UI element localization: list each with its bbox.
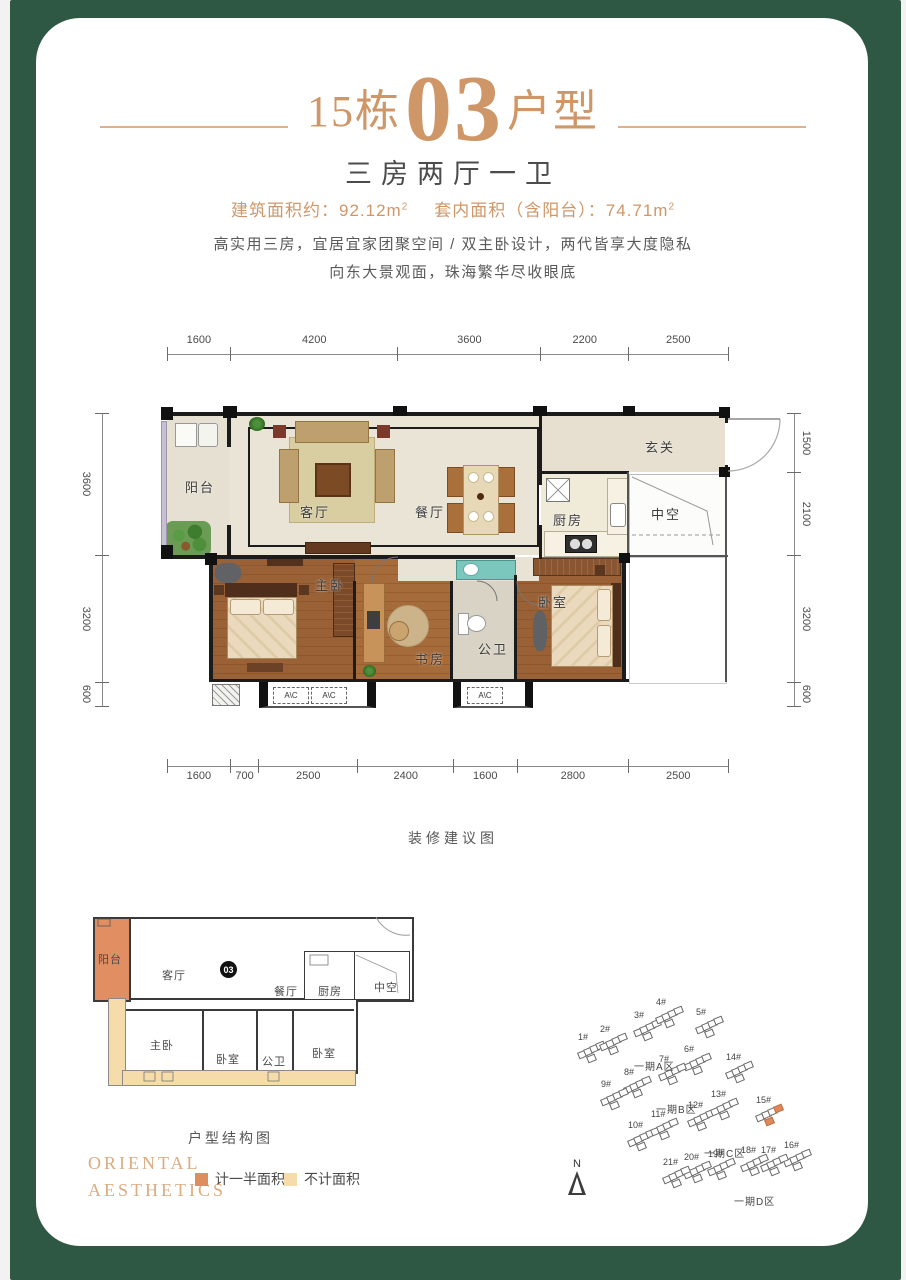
site-zone-label-1: 一期B区 (656, 1101, 697, 1116)
site-building-13: 13# (711, 1099, 737, 1115)
structure-plan: 03 阳台客厅餐厅厨房中空主卧卧室公卫卧室 (90, 903, 425, 1103)
study-plant (363, 665, 376, 677)
site-building-id: 20# (684, 1152, 699, 1162)
dim-label: 3200 (800, 607, 812, 631)
room-label-7: 书房 (415, 649, 445, 668)
foyer-room (539, 415, 725, 472)
dimension-chain-bottom: 160070025002400160028002500 (167, 752, 728, 788)
bedroom2-rug (533, 611, 547, 651)
room-label-0: 阳台 (185, 477, 215, 496)
site-building-15: 15# (756, 1105, 782, 1121)
sofa-main (295, 421, 369, 443)
structure-plan-caption: 户型结构图 (188, 1128, 273, 1148)
site-building-5: 5# (696, 1017, 722, 1033)
inner-area-sup: 2 (668, 201, 675, 212)
toilet-bowl (467, 615, 486, 632)
plate-2 (483, 472, 494, 483)
build-area-value: 92.12m (339, 201, 402, 220)
master-bed-head (225, 583, 297, 597)
site-building-id: 15# (756, 1095, 771, 1105)
legend-no-area: 不计面积 (284, 1169, 360, 1189)
site-building-6: 6# (684, 1054, 710, 1070)
site-zone-label-2: 一期C区 (704, 1145, 745, 1160)
study-chair (389, 621, 409, 641)
dim-label: 2500 (666, 334, 690, 346)
dim-label: 600 (80, 685, 92, 703)
dim-label: 3200 (80, 607, 92, 631)
master-bench (247, 663, 283, 672)
sp-room-label-2: 餐厅 (274, 983, 298, 999)
dim-label: 1600 (187, 334, 211, 346)
dim-label: 2200 (573, 334, 597, 346)
dim-label: 2100 (800, 502, 812, 526)
site-building-id: 1# (578, 1032, 588, 1042)
description-line-1: 高实用三房，宜居宜家团聚空间 / 双主卧设计，两代皆享大度隐私 (0, 233, 906, 254)
legend-swatch-no (284, 1173, 297, 1186)
sofa-right (375, 449, 395, 503)
site-zone-label-0: 一期A区 (634, 1058, 675, 1073)
sp-room-label-5: 主卧 (150, 1037, 174, 1053)
dim-label: 700 (235, 770, 253, 782)
side-table-left (273, 425, 286, 438)
washer (175, 423, 197, 447)
dim-label: 4200 (302, 334, 326, 346)
room-label-1: 客厅 (300, 502, 330, 521)
sp-room-label-1: 客厅 (162, 967, 186, 983)
fridge (546, 478, 570, 502)
ac-unit-label: A\C (478, 691, 491, 700)
site-building-id: 3# (634, 1010, 644, 1020)
room-label-3: 玄关 (645, 437, 675, 456)
study-laptop (367, 611, 380, 629)
sp-unit-badge: 03 (220, 961, 237, 978)
site-building-id: 21# (663, 1157, 678, 1167)
sp-room-label-7: 公卫 (262, 1053, 286, 1069)
site-building-id: 13# (711, 1089, 726, 1099)
site-building-id: 4# (656, 997, 666, 1007)
build-area-label: 建筑面积约： (231, 201, 339, 220)
stove (565, 535, 597, 553)
planter-hatch (212, 684, 240, 706)
legend-label-no: 不计面积 (304, 1169, 360, 1189)
dining-chairs-right2 (497, 503, 515, 533)
ac-unit-label: A\C (284, 691, 297, 700)
site-building-id: 14# (726, 1052, 741, 1062)
site-zone-label-3: 一期D区 (734, 1193, 775, 1208)
dim-label: 1600 (187, 770, 211, 782)
dining-chairs-right (497, 467, 515, 497)
bath-basin (463, 563, 479, 576)
dim-label: 2800 (561, 770, 585, 782)
site-building-14: 14# (726, 1062, 752, 1078)
area-info: 建筑面积约：92.12m2套内面积（含阳台）：74.71m2 (0, 196, 906, 221)
room-label-4: 厨房 (553, 510, 583, 529)
site-building-id: 16# (784, 1140, 799, 1150)
bedroom2-pillow-1 (597, 589, 611, 621)
bedroom2-nightstand (595, 565, 605, 575)
unit-label: 户型 (507, 87, 599, 136)
layout-subtitle: 三房两厅一卫 (0, 152, 906, 191)
inner-area-label: 套内面积（含阳台）： (434, 201, 606, 220)
plate-1 (468, 472, 479, 483)
site-building-11: 11# (651, 1119, 677, 1135)
side-table-right (377, 425, 390, 438)
site-plan: N 1#2#3#4#5#6#7#8#9#10#11#12#13#14#15#16… (550, 1000, 822, 1220)
site-building-id: 10# (628, 1120, 643, 1130)
site-building-2: 2# (600, 1034, 626, 1050)
page-title: 15栋 03 户型 (0, 62, 906, 156)
site-building-id: 9# (601, 1079, 611, 1089)
plant-living (249, 417, 265, 431)
site-building-21: 21# (663, 1167, 689, 1183)
legend-swatch-half (195, 1173, 208, 1186)
master-dresser (267, 558, 303, 566)
site-building-id: 2# (600, 1024, 610, 1034)
building-number: 15栋 (307, 87, 401, 136)
laundry-sink (198, 423, 218, 447)
room-label-9: 卧室 (538, 592, 568, 611)
description-line-2: 向东大景观面，珠海繁华尽收眼底 (0, 261, 906, 282)
dim-label: 600 (800, 685, 812, 703)
site-building-9: 9# (601, 1089, 627, 1105)
dimension-chain-right: 150021003200600 (786, 413, 826, 706)
tv-console (305, 542, 371, 554)
master-nightstand-1 (214, 585, 224, 595)
master-pillow-1 (230, 599, 261, 615)
dim-label: 1600 (473, 770, 497, 782)
main-plan-caption: 装修建议图 (0, 828, 906, 848)
master-nightstand-2 (299, 585, 309, 595)
site-building-id: 5# (696, 1007, 706, 1017)
legend-half-area: 计一半面积 (195, 1169, 285, 1189)
sofa-left (279, 449, 299, 503)
room-label-6: 主卧 (315, 575, 345, 594)
north-compass-icon (568, 1171, 586, 1195)
void-lower (629, 557, 727, 684)
main-floor-plan: A\C A\C A\C (167, 415, 728, 706)
master-pillow-2 (263, 599, 294, 615)
north-label: N (562, 1158, 592, 1170)
bedroom2-wardrobe (533, 558, 621, 576)
legend-label-half: 计一半面积 (215, 1169, 285, 1189)
ac-unit-3: A\C (467, 687, 503, 704)
ac-unit-1: A\C (273, 687, 309, 704)
dimension-chain-top: 16004200360022002500 (167, 334, 728, 368)
kitchen-sink (610, 503, 626, 527)
sp-cream-band (122, 1070, 356, 1086)
balcony-window (161, 421, 167, 551)
room-label-5: 中空 (651, 504, 681, 523)
dim-label: 3600 (80, 472, 92, 496)
inner-area-value: 74.71m (606, 201, 669, 220)
plate-4 (483, 511, 494, 522)
site-building-id: 8# (624, 1067, 634, 1077)
brochure-page: 15栋 03 户型 三房两厅一卫 建筑面积约：92.12m2套内面积（含阳台）：… (0, 0, 906, 1280)
sp-room-label-6: 卧室 (216, 1051, 240, 1067)
dim-label: 2400 (393, 770, 417, 782)
site-building-4: 4# (656, 1007, 682, 1023)
unit-number: 03 (405, 57, 503, 161)
sp-room-label-4: 中空 (374, 979, 398, 995)
room-label-2: 餐厅 (415, 502, 445, 521)
sp-room-label-3: 厨房 (318, 983, 342, 999)
dim-label: 2500 (666, 770, 690, 782)
dim-label: 1500 (800, 430, 812, 454)
sp-room-label-8: 卧室 (312, 1045, 336, 1061)
master-rug (215, 563, 241, 583)
dim-label: 3600 (457, 334, 481, 346)
site-building-id: 6# (684, 1044, 694, 1054)
room-label-8: 公卫 (478, 639, 508, 658)
sp-room-label-0: 阳台 (98, 951, 122, 967)
dim-label: 2500 (296, 770, 320, 782)
centerpiece (477, 493, 484, 500)
coffee-table (315, 463, 351, 497)
ac-unit-label: A\C (322, 691, 335, 700)
north-arrow: N (562, 1158, 592, 1200)
plate-3 (468, 511, 479, 522)
dimension-chain-left: 36003200600 (80, 413, 114, 706)
build-area-sup: 2 (402, 201, 409, 212)
ac-unit-2: A\C (311, 687, 347, 704)
bedroom2-pillow-2 (597, 625, 611, 657)
